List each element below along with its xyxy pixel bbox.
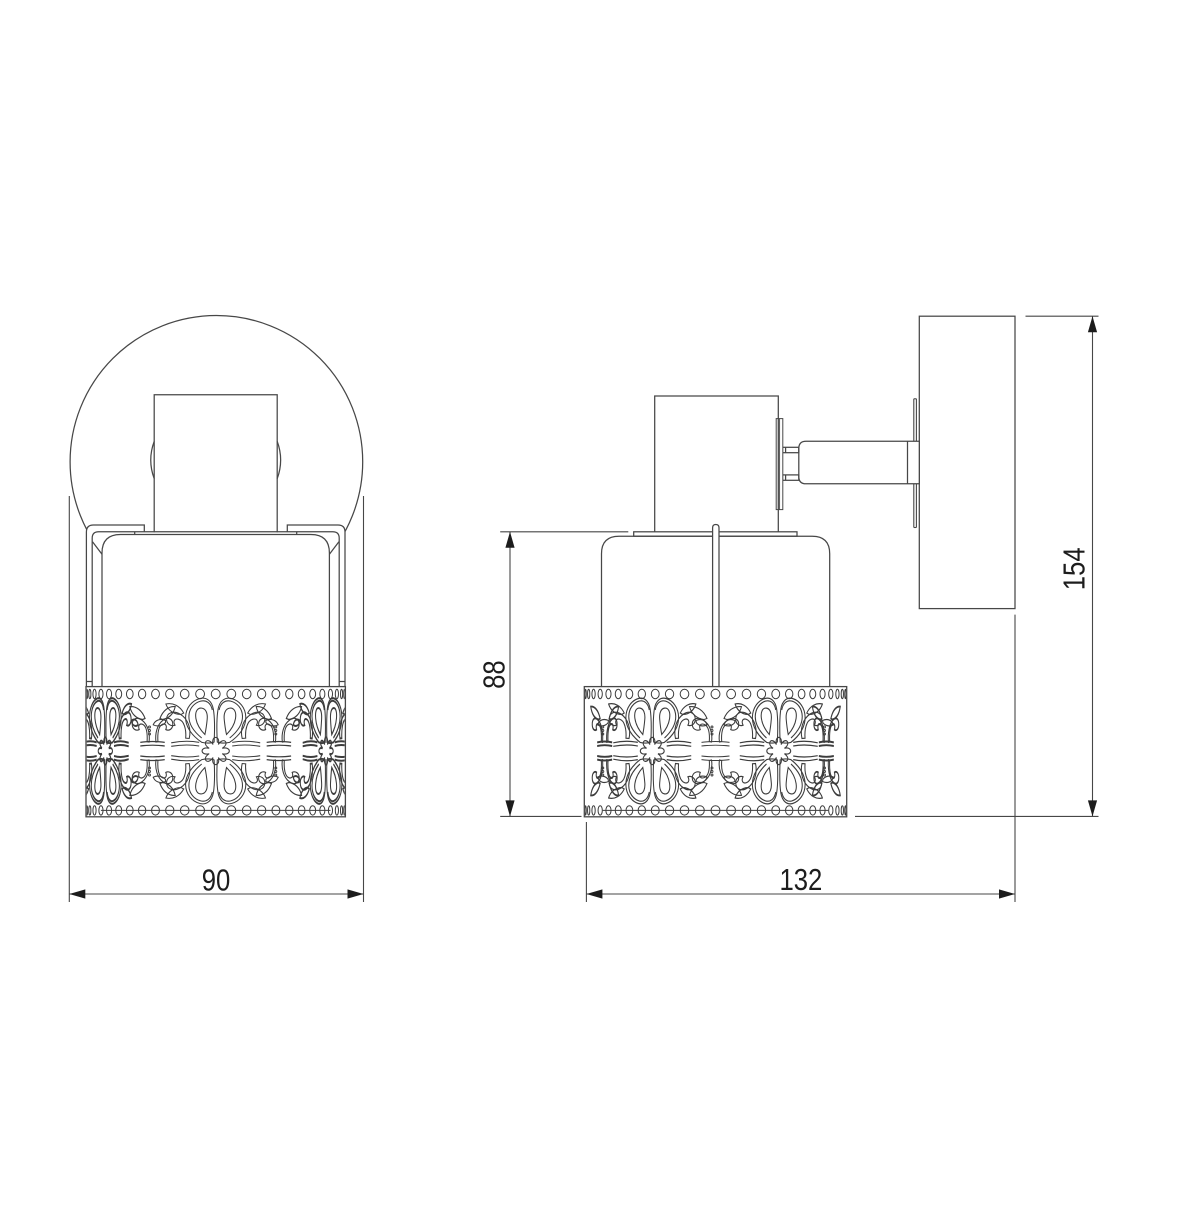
svg-text:90: 90: [202, 862, 231, 897]
svg-text:88: 88: [476, 660, 511, 689]
svg-text:132: 132: [779, 862, 822, 897]
svg-text:154: 154: [1056, 547, 1091, 590]
